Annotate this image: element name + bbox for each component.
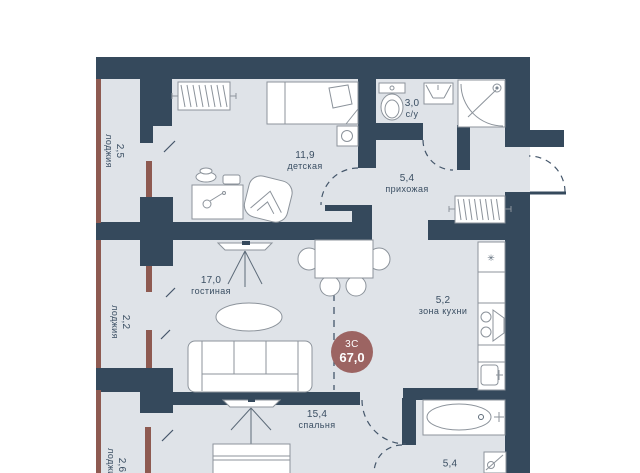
- room-label-gostinaya: 17,0 гостиная: [191, 275, 231, 297]
- room-label-detskaya: 11,9 детская: [287, 150, 322, 172]
- shower-icon: [458, 80, 505, 127]
- sofa-icon: [188, 341, 312, 392]
- floor-plan-drawing: ✳: [0, 0, 640, 473]
- room-label-spalnya: 15,4 спальня: [299, 409, 336, 431]
- toilet-icon: [379, 83, 405, 120]
- washing-machine-icon: [484, 452, 506, 473]
- room-label-loggia-top: 2,5 лоджия: [103, 134, 125, 168]
- radiator-icon: [172, 82, 236, 110]
- room-label-prihozhaya: 5,4 прихожая: [385, 173, 428, 195]
- room-label-su: 3,0 с/у: [405, 98, 420, 120]
- apartment-area-badge: 3С 67,0: [331, 331, 373, 373]
- nightstand-icon: [337, 126, 358, 146]
- wardrobe-icon: [449, 196, 511, 223]
- room-label-loggia-bottom: 2,6 лоджия: [105, 448, 127, 473]
- room-label-loggia-mid: 2,2 лоджия: [109, 305, 131, 339]
- coffee-table-icon: [216, 303, 282, 331]
- bathtub-icon: [423, 400, 505, 435]
- fridge-icon: ✳: [487, 253, 495, 263]
- entry-door-arc: [529, 156, 565, 192]
- bed-icon: [213, 444, 290, 473]
- kids-bed-icon: [267, 82, 358, 124]
- sink-icon: [424, 83, 453, 104]
- room-label-kitchen-zone: 5,2 зона кухни: [419, 295, 468, 317]
- room-label-su2: 5,4: [443, 459, 458, 470]
- apartment-total-area: 67,0: [339, 350, 364, 365]
- kitchen-units: ✳: [478, 242, 505, 390]
- floor-plan: ✳: [0, 0, 640, 473]
- apartment-type-label: 3С: [345, 339, 359, 350]
